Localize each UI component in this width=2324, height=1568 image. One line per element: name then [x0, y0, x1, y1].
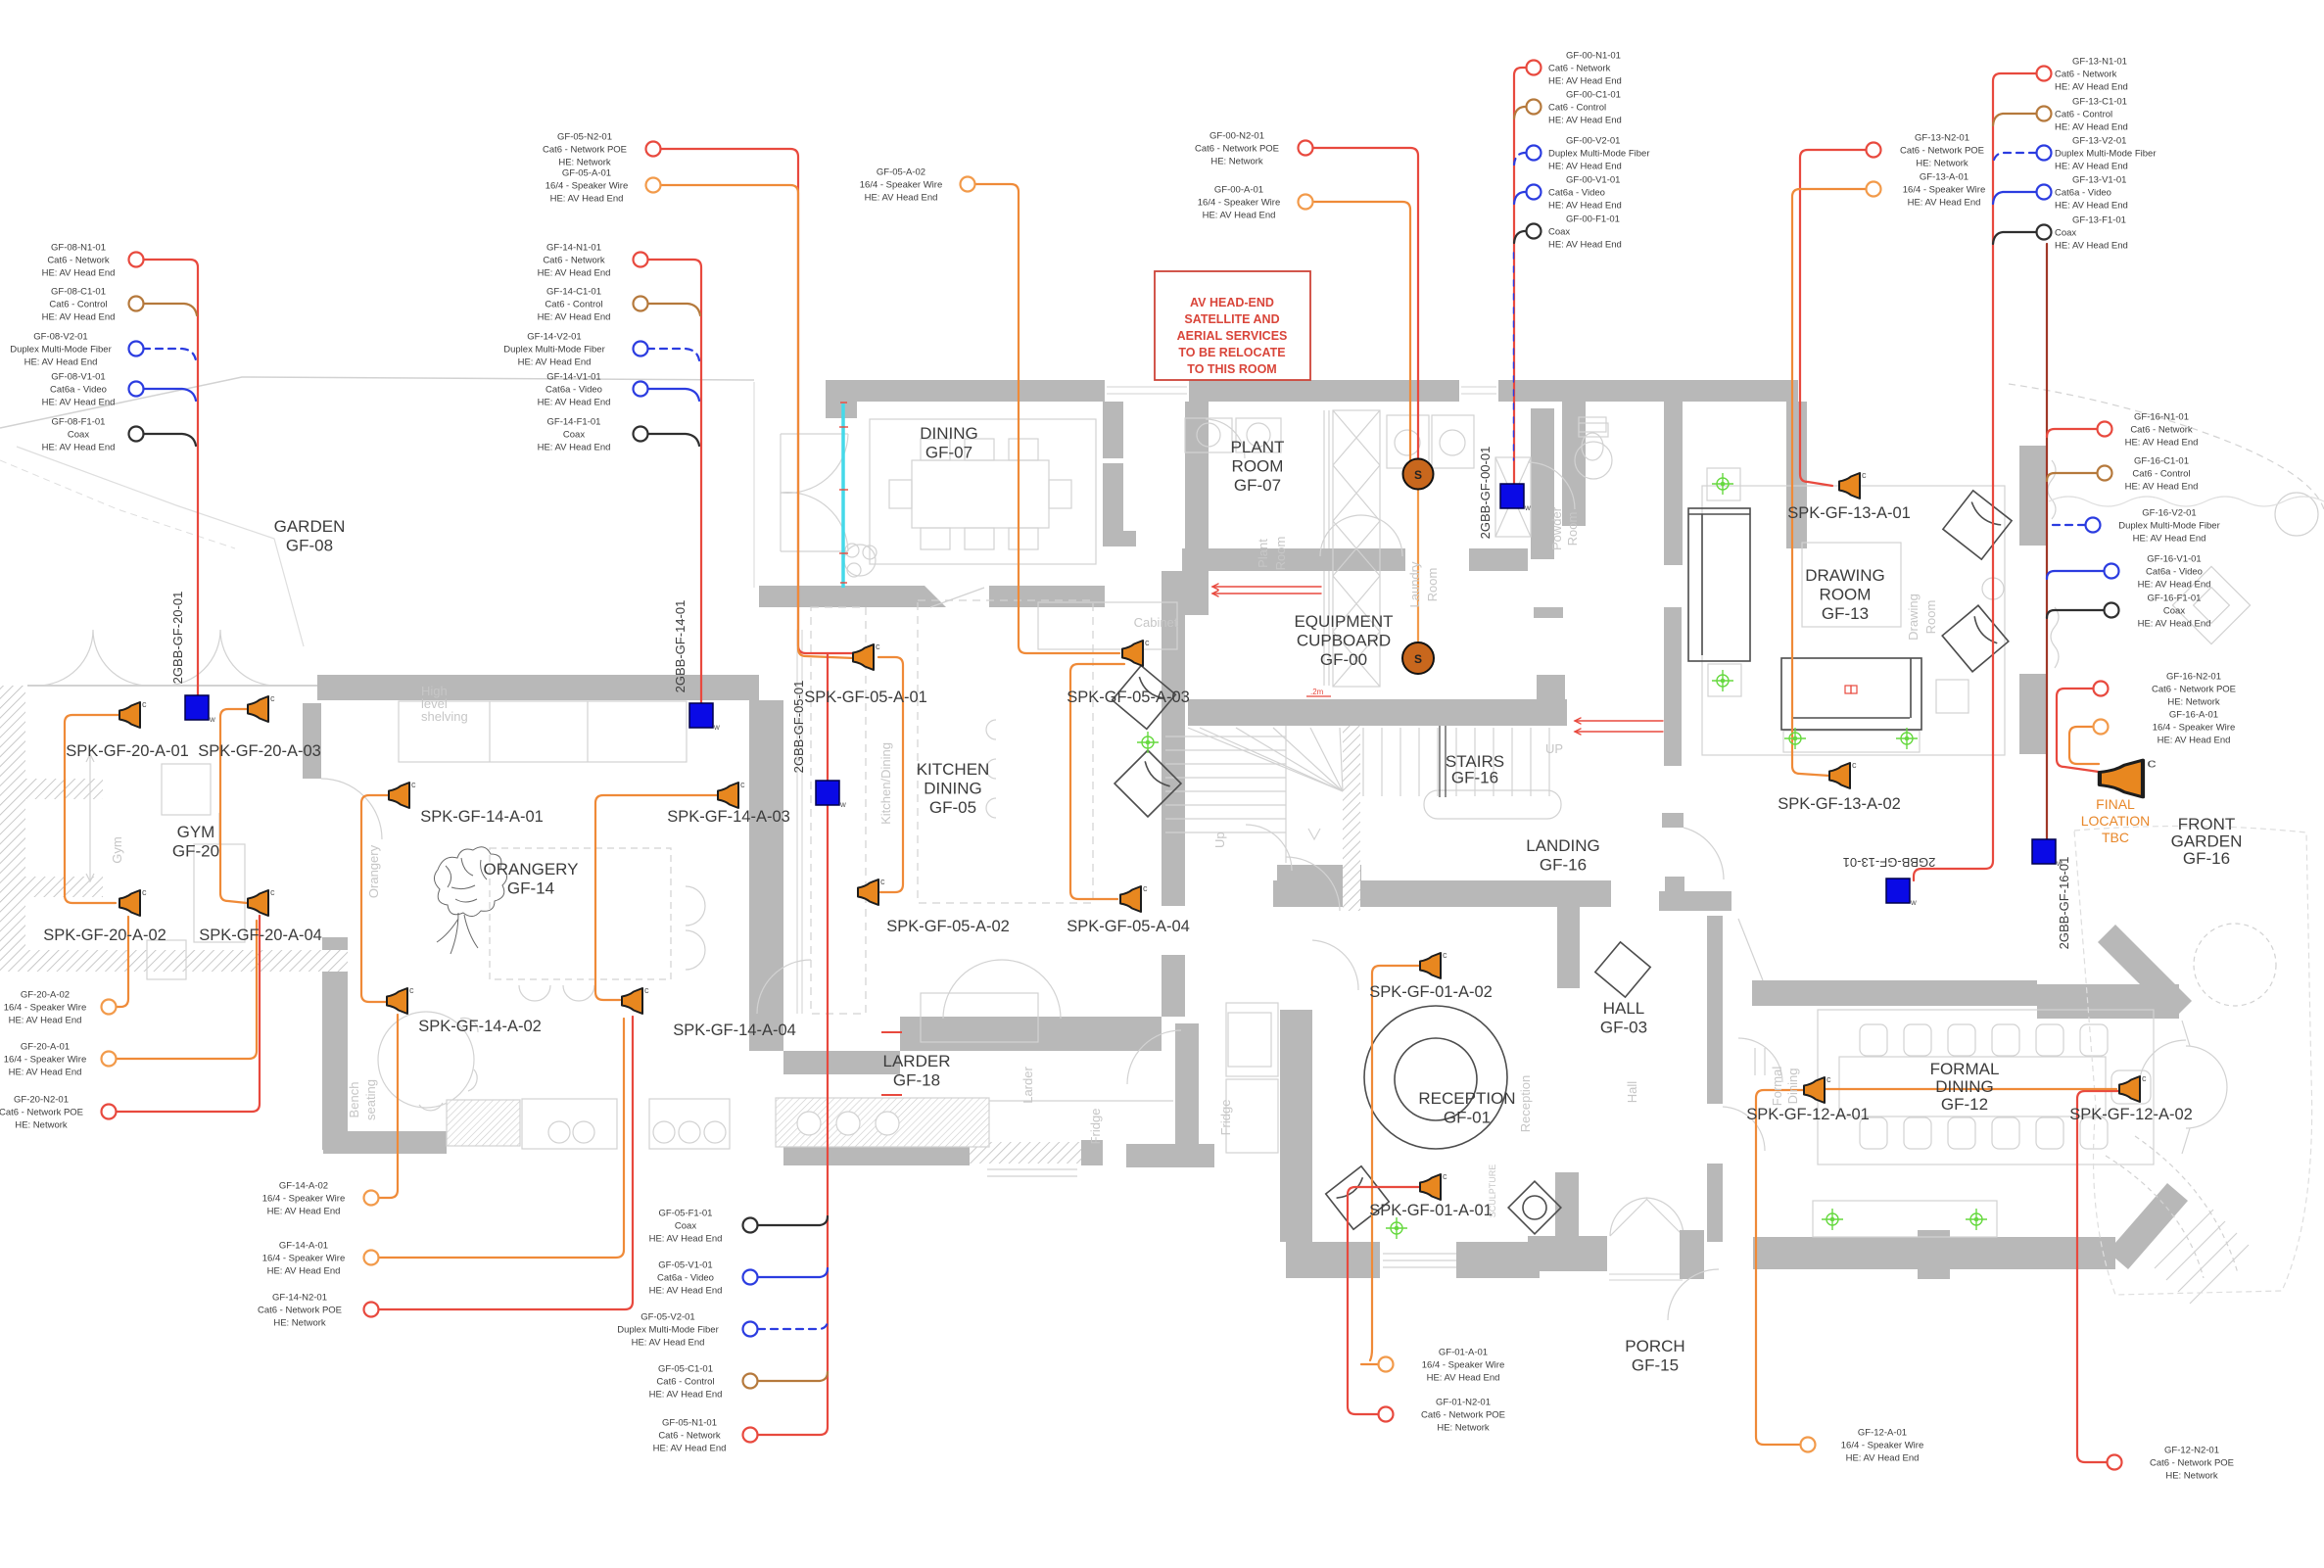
svg-text:GF-13-N2-01: GF-13-N2-01 [1915, 133, 1969, 144]
svg-text:HE: AV Head End: HE: AV Head End [1548, 201, 1622, 212]
svg-text:GF-13-F1-01: GF-13-F1-01 [2072, 215, 2126, 226]
svg-text:HE: AV Head End: HE: AV Head End [267, 1207, 341, 1217]
svg-text:DINING: DINING [920, 424, 978, 443]
svg-text:Plant: Plant [1256, 539, 1270, 568]
svg-text:HE: Network: HE: Network [1210, 157, 1263, 167]
svg-text:GF-05-A-01: GF-05-A-01 [562, 168, 611, 179]
svg-text:GF-14-A-02: GF-14-A-02 [279, 1181, 328, 1192]
svg-text:HE: AV Head End: HE: AV Head End [2125, 482, 2199, 493]
svg-text:HE: AV Head End: HE: AV Head End [865, 193, 938, 204]
svg-text:HE: AV Head End: HE: AV Head End [2055, 241, 2128, 252]
svg-text:HE: AV Head End: HE: AV Head End [1548, 116, 1622, 126]
svg-text:GF-16-N1-01: GF-16-N1-01 [2134, 412, 2189, 423]
svg-text:GYM: GYM [177, 823, 215, 841]
svg-text:GF-13-V1-01: GF-13-V1-01 [2072, 175, 2126, 186]
svg-text:Cat6 - Network: Cat6 - Network [47, 256, 110, 266]
svg-text:2GBB-GF-13-01: 2GBB-GF-13-01 [1843, 855, 1936, 870]
svg-text:HE: AV Head End: HE: AV Head End [649, 1390, 723, 1401]
svg-text:HE: AV Head End: HE: AV Head End [42, 398, 116, 408]
svg-text:2GBB-GF-16-01: 2GBB-GF-16-01 [2057, 857, 2071, 950]
svg-text:PORCH: PORCH [1625, 1337, 1684, 1355]
svg-text:c: c [880, 877, 885, 886]
svg-text:TO BE RELOCATE: TO BE RELOCATE [1178, 346, 1285, 359]
svg-text:HE: AV Head End: HE: AV Head End [653, 1444, 727, 1454]
svg-text:Dining: Dining [1785, 1069, 1800, 1105]
svg-text:HE: AV Head End: HE: AV Head End [649, 1234, 723, 1245]
svg-text:GF-08-V1-01: GF-08-V1-01 [51, 372, 105, 383]
svg-text:Cabinet: Cabinet [1134, 615, 1178, 630]
svg-text:GF-14-A-01: GF-14-A-01 [279, 1241, 328, 1252]
svg-text:Cat6 - Network POE: Cat6 - Network POE [258, 1306, 342, 1316]
svg-text:GF-01-A-01: GF-01-A-01 [1439, 1348, 1488, 1358]
svg-text:SPK-GF-05-A-03: SPK-GF-05-A-03 [1067, 689, 1190, 706]
svg-text:c: c [1852, 760, 1857, 770]
svg-text:Fridge: Fridge [1088, 1109, 1103, 1145]
svg-text:GF-00-N1-01: GF-00-N1-01 [1566, 51, 1621, 62]
svg-text:GF-05-N1-01: GF-05-N1-01 [662, 1418, 717, 1429]
svg-text:c: c [270, 693, 275, 703]
svg-text:Coax: Coax [675, 1221, 696, 1232]
svg-text:GF-05-V2-01: GF-05-V2-01 [640, 1312, 694, 1323]
svg-text:GF-14-V1-01: GF-14-V1-01 [546, 372, 600, 383]
svg-text:SPK-GF-20-A-04: SPK-GF-20-A-04 [199, 927, 322, 944]
svg-text:HE: AV Head End: HE: AV Head End [538, 312, 611, 323]
svg-text:HE: AV Head End: HE: AV Head End [42, 268, 116, 279]
svg-text:Cat6 - Control: Cat6 - Control [49, 300, 107, 310]
svg-text:Cat6 - Network: Cat6 - Network [543, 256, 605, 266]
svg-text:c: c [2147, 756, 2156, 770]
svg-text:2GBB-GF-00-01: 2GBB-GF-00-01 [1478, 447, 1493, 540]
svg-text:Cat6 - Network: Cat6 - Network [2055, 70, 2117, 80]
svg-text:Larder: Larder [1020, 1067, 1035, 1104]
svg-text:SPK-GF-20-A-02: SPK-GF-20-A-02 [43, 927, 166, 944]
svg-text:HE: AV Head End: HE: AV Head End [267, 1266, 341, 1277]
svg-text:Cat6 - Control: Cat6 - Control [2132, 469, 2190, 480]
svg-text:SPK-GF-01-A-01: SPK-GF-01-A-01 [1369, 1202, 1493, 1219]
svg-text:Fridge: Fridge [1218, 1100, 1233, 1136]
svg-text:c: c [644, 985, 649, 995]
svg-text:FRONT: FRONT [2178, 815, 2236, 833]
svg-text:GF-05-C1-01: GF-05-C1-01 [658, 1364, 713, 1375]
svg-text:HE: AV Head End: HE: AV Head End [2055, 82, 2128, 93]
svg-text:Coax: Coax [2055, 228, 2076, 239]
svg-text:HE: AV Head End: HE: AV Head End [1548, 162, 1622, 172]
svg-text:Duplex Multi-Mode Fiber: Duplex Multi-Mode Fiber [10, 345, 111, 356]
svg-text:SPK-GF-12-A-01: SPK-GF-12-A-01 [1746, 1106, 1870, 1123]
svg-text:Cat6 - Network: Cat6 - Network [1548, 64, 1611, 74]
svg-text:HE: AV Head End: HE: AV Head End [518, 357, 592, 368]
svg-text:Cat6a - Video: Cat6a - Video [2146, 567, 2203, 578]
svg-text:HE: AV Head End: HE: AV Head End [2138, 619, 2211, 630]
svg-text:GF-13-A-01: GF-13-A-01 [1920, 172, 1968, 183]
svg-text:Cat6 - Network POE: Cat6 - Network POE [1421, 1410, 1505, 1421]
svg-text:GF-16-C1-01: GF-16-C1-01 [2134, 456, 2189, 467]
svg-text:Room: Room [1923, 600, 1938, 635]
svg-text:HE: AV Head End: HE: AV Head End [2055, 122, 2128, 133]
svg-text:SPK-GF-14-A-04: SPK-GF-14-A-04 [673, 1022, 796, 1039]
svg-text:HE: AV Head End: HE: AV Head End [1548, 76, 1622, 87]
svg-text:16/4 - Speaker Wire: 16/4 - Speaker Wire [262, 1254, 345, 1264]
svg-text:HE: AV Head End: HE: AV Head End [9, 1016, 82, 1026]
svg-text:GF-05-F1-01: GF-05-F1-01 [659, 1209, 713, 1219]
svg-text:GF-20: GF-20 [172, 842, 219, 861]
svg-text:GF-16-V2-01: GF-16-V2-01 [2142, 508, 2196, 519]
svg-text:HALL: HALL [1603, 999, 1645, 1018]
svg-text:GF-13: GF-13 [1822, 604, 1869, 623]
svg-text:Cat6 - Network POE: Cat6 - Network POE [543, 145, 627, 156]
svg-text:AERIAL SERVICES: AERIAL SERVICES [1177, 329, 1288, 343]
svg-text:HE: Network: HE: Network [2165, 1471, 2218, 1482]
svg-text:S: S [1414, 468, 1422, 482]
svg-text:LANDING: LANDING [1526, 836, 1600, 855]
svg-text:c: c [1862, 470, 1867, 480]
svg-text:GF-01: GF-01 [1444, 1109, 1491, 1127]
svg-text:FORMAL: FORMAL [1930, 1060, 2000, 1078]
svg-text:GF-08-N1-01: GF-08-N1-01 [51, 243, 106, 254]
svg-text:w: w [839, 800, 846, 809]
svg-text:c: c [270, 887, 275, 897]
svg-text:DINING: DINING [924, 780, 982, 798]
svg-text:ROOM: ROOM [1820, 586, 1872, 604]
svg-text:16/4 - Speaker Wire: 16/4 - Speaker Wire [1903, 185, 1985, 196]
svg-text:16/4 - Speaker Wire: 16/4 - Speaker Wire [4, 1055, 86, 1066]
svg-text:w: w [713, 723, 720, 732]
svg-text:HE: AV Head End: HE: AV Head End [2133, 534, 2206, 545]
svg-text:GF-14-N2-01: GF-14-N2-01 [272, 1293, 327, 1304]
svg-text:16/4 - Speaker Wire: 16/4 - Speaker Wire [860, 180, 942, 191]
svg-text:HE: AV Head End: HE: AV Head End [2055, 162, 2128, 172]
svg-text:seating: seating [363, 1079, 378, 1120]
svg-text:c: c [1826, 1074, 1831, 1084]
svg-text:GF-20-A-02: GF-20-A-02 [21, 990, 70, 1001]
svg-text:Kitchen/Dining: Kitchen/Dining [878, 742, 893, 825]
svg-text:Cat6 - Network POE: Cat6 - Network POE [2150, 1458, 2234, 1469]
svg-text:ORANGERY: ORANGERY [484, 860, 579, 879]
svg-text:GF-16: GF-16 [1451, 769, 1498, 787]
svg-text:TBC: TBC [2102, 830, 2129, 845]
svg-text:c: c [740, 780, 745, 789]
svg-text:HE: Network: HE: Network [558, 158, 611, 168]
svg-text:GF-16: GF-16 [2183, 849, 2230, 868]
svg-text:Duplex Multi-Mode Fiber: Duplex Multi-Mode Fiber [2055, 149, 2156, 160]
svg-text:c: c [142, 699, 147, 709]
svg-text:16/4 - Speaker Wire: 16/4 - Speaker Wire [262, 1194, 345, 1205]
svg-text:c: c [1143, 883, 1148, 893]
svg-text:SPK-GF-14-A-01: SPK-GF-14-A-01 [420, 808, 544, 826]
svg-text:Orangery: Orangery [366, 844, 381, 898]
svg-text:Cat6a - Video: Cat6a - Video [2055, 188, 2111, 199]
svg-text:2GBB-GF-05-01: 2GBB-GF-05-01 [791, 681, 806, 774]
svg-text:16/4 - Speaker Wire: 16/4 - Speaker Wire [1198, 198, 1280, 209]
svg-text:GF-00-V2-01: GF-00-V2-01 [1566, 136, 1620, 147]
svg-text:FINAL: FINAL [2096, 796, 2135, 812]
svg-text:GF-16-F1-01: GF-16-F1-01 [2148, 594, 2202, 604]
svg-text:DRAWING: DRAWING [1805, 566, 1885, 585]
svg-text:GF-00-F1-01: GF-00-F1-01 [1566, 214, 1620, 225]
svg-text:GF-20-N2-01: GF-20-N2-01 [14, 1095, 69, 1106]
svg-text:SPK-GF-05-A-01: SPK-GF-05-A-01 [804, 689, 927, 706]
svg-text:GF-16: GF-16 [1540, 856, 1587, 875]
svg-text:GF-13-N1-01: GF-13-N1-01 [2072, 57, 2127, 68]
svg-text:SPK-GF-01-A-02: SPK-GF-01-A-02 [1369, 983, 1493, 1001]
svg-text:Cat6 - Network POE: Cat6 - Network POE [1195, 144, 1279, 155]
svg-text:GF-14: GF-14 [507, 879, 554, 898]
svg-text:GF-18: GF-18 [893, 1071, 940, 1090]
svg-text:HE: Network: HE: Network [15, 1120, 68, 1131]
svg-text:GF-08-F1-01: GF-08-F1-01 [52, 417, 106, 428]
svg-text:Coax: Coax [68, 430, 89, 441]
svg-text:Cat6 - Network: Cat6 - Network [658, 1431, 721, 1442]
svg-text:GF-20-A-01: GF-20-A-01 [21, 1042, 70, 1053]
svg-text:HE: AV Head End: HE: AV Head End [649, 1286, 723, 1297]
svg-text:Cat6 - Network POE: Cat6 - Network POE [0, 1108, 83, 1118]
svg-text:Cat6a - Video: Cat6a - Video [1548, 188, 1605, 199]
svg-text:GF-07: GF-07 [1234, 476, 1281, 495]
svg-text:Formal: Formal [1770, 1067, 1784, 1107]
svg-text:Cat6 - Network POE: Cat6 - Network POE [2152, 685, 2236, 695]
svg-text:S: S [1414, 652, 1422, 666]
svg-text:HE: AV Head End: HE: AV Head End [42, 312, 116, 323]
svg-text:Coax: Coax [2163, 606, 2185, 617]
svg-text:16/4 - Speaker Wire: 16/4 - Speaker Wire [545, 181, 628, 192]
svg-text:HE: AV Head End: HE: AV Head End [632, 1338, 705, 1349]
svg-text:Cat6 - Control: Cat6 - Control [656, 1377, 714, 1388]
svg-text:c: c [411, 780, 416, 789]
svg-text:GF-01-N2-01: GF-01-N2-01 [1436, 1398, 1491, 1408]
svg-text:ROOM: ROOM [1232, 457, 1284, 476]
svg-text:GF-16-A-01: GF-16-A-01 [2169, 710, 2218, 721]
svg-text:HE: Network: HE: Network [1437, 1423, 1490, 1434]
svg-text:Cat6 - Control: Cat6 - Control [2055, 110, 2112, 120]
svg-text:HE: AV Head End: HE: AV Head End [550, 194, 624, 205]
svg-text:GF-14-V2-01: GF-14-V2-01 [527, 332, 581, 343]
svg-text:SPK-GF-13-A-02: SPK-GF-13-A-02 [1778, 795, 1901, 813]
svg-text:GF-16-N2-01: GF-16-N2-01 [2166, 672, 2221, 683]
svg-text:Duplex Multi-Mode Fiber: Duplex Multi-Mode Fiber [1548, 149, 1649, 160]
svg-text:c: c [876, 641, 880, 651]
svg-text:Duplex Multi-Mode Fiber: Duplex Multi-Mode Fiber [2118, 521, 2219, 532]
svg-text:Bench: Bench [347, 1082, 361, 1118]
svg-text:GF-00-C1-01: GF-00-C1-01 [1566, 90, 1621, 101]
svg-text:Hall: Hall [1625, 1081, 1639, 1104]
svg-text:16/4 - Speaker Wire: 16/4 - Speaker Wire [1841, 1441, 1923, 1451]
svg-text:.2m: .2m [1310, 688, 1324, 696]
svg-text:Reception: Reception [1518, 1075, 1533, 1133]
svg-text:GF-12-N2-01: GF-12-N2-01 [2164, 1446, 2219, 1456]
svg-text:Room: Room [1425, 568, 1440, 602]
svg-text:SPK-GF-20-A-03: SPK-GF-20-A-03 [198, 742, 321, 760]
svg-text:Up: Up [1212, 832, 1227, 848]
svg-text:16/4 - Speaker Wire: 16/4 - Speaker Wire [4, 1003, 86, 1014]
svg-text:HE: AV Head End: HE: AV Head End [42, 443, 116, 453]
svg-text:CUPBOARD: CUPBOARD [1297, 632, 1391, 650]
svg-text:HE: AV Head End: HE: AV Head End [2158, 736, 2231, 746]
svg-text:HE: Network: HE: Network [2167, 697, 2220, 708]
svg-text:HE: AV Head End: HE: AV Head End [538, 398, 611, 408]
svg-text:GF-14-N1-01: GF-14-N1-01 [546, 243, 601, 254]
svg-text:TO THIS ROOM: TO THIS ROOM [1187, 362, 1276, 376]
svg-text:Coax: Coax [563, 430, 585, 441]
svg-text:AV HEAD-END: AV HEAD-END [1190, 296, 1274, 309]
svg-text:c: c [2142, 1073, 2147, 1083]
svg-text:Powder: Powder [1549, 506, 1564, 550]
svg-text:Cat6a - Video: Cat6a - Video [545, 385, 602, 396]
svg-text:KITCHEN: KITCHEN [917, 760, 990, 779]
svg-text:HE: AV Head End: HE: AV Head End [2055, 201, 2128, 212]
svg-text:GF-08-C1-01: GF-08-C1-01 [51, 287, 106, 298]
svg-text:HE: AV Head End: HE: AV Head End [2138, 580, 2211, 591]
svg-text:SPK-GF-12-A-02: SPK-GF-12-A-02 [2069, 1106, 2193, 1123]
svg-text:HE: AV Head End: HE: AV Head End [1846, 1453, 1920, 1464]
svg-text:SPK-GF-13-A-01: SPK-GF-13-A-01 [1787, 504, 1911, 522]
svg-text:SPK-GF-20-A-01: SPK-GF-20-A-01 [66, 742, 189, 760]
svg-text:HE: AV Head End: HE: AV Head End [1908, 198, 1981, 209]
svg-text:HE: AV Head End: HE: AV Head End [538, 268, 611, 279]
svg-text:LOCATION: LOCATION [2081, 813, 2151, 829]
svg-text:16/4 - Speaker Wire: 16/4 - Speaker Wire [1422, 1360, 1504, 1371]
svg-text:LARDER: LARDER [883, 1052, 951, 1070]
svg-text:SATELLITE AND: SATELLITE AND [1184, 312, 1279, 326]
svg-text:Gym: Gym [110, 836, 124, 863]
svg-text:GARDEN: GARDEN [2171, 832, 2243, 851]
svg-text:GF-12: GF-12 [1941, 1095, 1988, 1114]
svg-text:PLANT: PLANT [1231, 438, 1285, 456]
svg-text:HE: AV Head End: HE: AV Head End [24, 357, 98, 368]
svg-text:SPK-GF-05-A-02: SPK-GF-05-A-02 [886, 918, 1010, 935]
svg-text:UP: UP [1545, 741, 1563, 756]
svg-text:HE: Network: HE: Network [1916, 159, 1968, 169]
svg-text:c: c [1443, 950, 1447, 960]
svg-text:HE: AV Head End: HE: AV Head End [538, 443, 611, 453]
svg-text:Room: Room [1565, 512, 1580, 546]
svg-text:Cat6a - Video: Cat6a - Video [657, 1273, 714, 1284]
svg-text:Duplex Multi-Mode Fiber: Duplex Multi-Mode Fiber [617, 1325, 718, 1336]
svg-text:Duplex Multi-Mode Fiber: Duplex Multi-Mode Fiber [503, 345, 604, 356]
svg-text:HE: AV Head End: HE: AV Head End [9, 1068, 82, 1078]
svg-text:GF-00-N2-01: GF-00-N2-01 [1209, 131, 1264, 142]
svg-text:c: c [409, 985, 414, 995]
svg-text:DINING: DINING [1935, 1077, 1994, 1096]
svg-text:Laundry: Laundry [1407, 561, 1422, 607]
svg-text:GF-16-V1-01: GF-16-V1-01 [2147, 554, 2201, 565]
svg-text:HE: AV Head End: HE: AV Head End [1427, 1373, 1500, 1384]
svg-text:shelving: shelving [421, 709, 468, 724]
svg-text:HE: AV Head End: HE: AV Head End [1203, 211, 1276, 221]
svg-text:GF-14-C1-01: GF-14-C1-01 [546, 287, 601, 298]
svg-text:GF-05-N2-01: GF-05-N2-01 [557, 132, 612, 143]
svg-text:GF-03: GF-03 [1600, 1019, 1647, 1037]
svg-text:c: c [1443, 1171, 1447, 1181]
svg-text:GF-12-A-01: GF-12-A-01 [1858, 1428, 1907, 1439]
svg-text:GF-00-A-01: GF-00-A-01 [1214, 185, 1263, 196]
svg-text:c: c [142, 887, 147, 897]
svg-text:GF-05: GF-05 [929, 798, 976, 817]
svg-text:16/4 - Speaker Wire: 16/4 - Speaker Wire [2153, 723, 2235, 734]
svg-text:Cat6a - Video: Cat6a - Video [50, 385, 107, 396]
svg-text:SPK-GF-14-A-03: SPK-GF-14-A-03 [667, 808, 790, 826]
svg-text:GF-14-F1-01: GF-14-F1-01 [547, 417, 601, 428]
svg-text:2GBB-GF-20-01: 2GBB-GF-20-01 [170, 592, 185, 685]
svg-text:GF-13-V2-01: GF-13-V2-01 [2072, 136, 2126, 147]
svg-text:w: w [1910, 898, 1917, 907]
svg-text:GF-08: GF-08 [286, 537, 333, 555]
svg-text:HE: Network: HE: Network [273, 1318, 326, 1329]
svg-text:EQUIPMENT: EQUIPMENT [1294, 612, 1393, 631]
svg-text:HE: AV Head End: HE: AV Head End [1548, 240, 1622, 251]
svg-text:c: c [1145, 638, 1150, 647]
svg-text:w: w [1524, 503, 1531, 512]
svg-text:GF-00-V1-01: GF-00-V1-01 [1566, 175, 1620, 186]
svg-text:Room: Room [1273, 537, 1288, 571]
svg-text:Coax: Coax [1548, 227, 1570, 238]
svg-text:Cat6 - Network: Cat6 - Network [2130, 425, 2193, 436]
svg-text:2GBB-GF-14-01: 2GBB-GF-14-01 [673, 600, 688, 693]
svg-text:w: w [209, 715, 215, 724]
svg-text:Cat6 - Control: Cat6 - Control [1548, 103, 1606, 114]
svg-text:GARDEN: GARDEN [274, 517, 346, 536]
svg-text:SCULPTURE: SCULPTURE [1488, 1164, 1497, 1218]
svg-text:GF-05-A-02: GF-05-A-02 [877, 167, 925, 178]
svg-text:GF-05-V1-01: GF-05-V1-01 [658, 1260, 712, 1271]
svg-text:HE: AV Head End: HE: AV Head End [2125, 438, 2199, 449]
svg-text:Cat6 - Control: Cat6 - Control [545, 300, 602, 310]
svg-text:SPK-GF-05-A-04: SPK-GF-05-A-04 [1067, 918, 1190, 935]
svg-text:GF-00: GF-00 [1320, 650, 1367, 669]
svg-text:GF-15: GF-15 [1632, 1356, 1679, 1375]
svg-text:Cat6 - Network POE: Cat6 - Network POE [1900, 146, 1984, 157]
svg-text:GF-08-V2-01: GF-08-V2-01 [33, 332, 87, 343]
svg-text:Drawing: Drawing [1906, 594, 1921, 641]
svg-text:GF-07: GF-07 [925, 444, 972, 462]
svg-text:GF-13-C1-01: GF-13-C1-01 [2072, 97, 2127, 108]
svg-text:RECEPTION: RECEPTION [1418, 1089, 1515, 1108]
svg-text:SPK-GF-14-A-02: SPK-GF-14-A-02 [418, 1018, 542, 1035]
